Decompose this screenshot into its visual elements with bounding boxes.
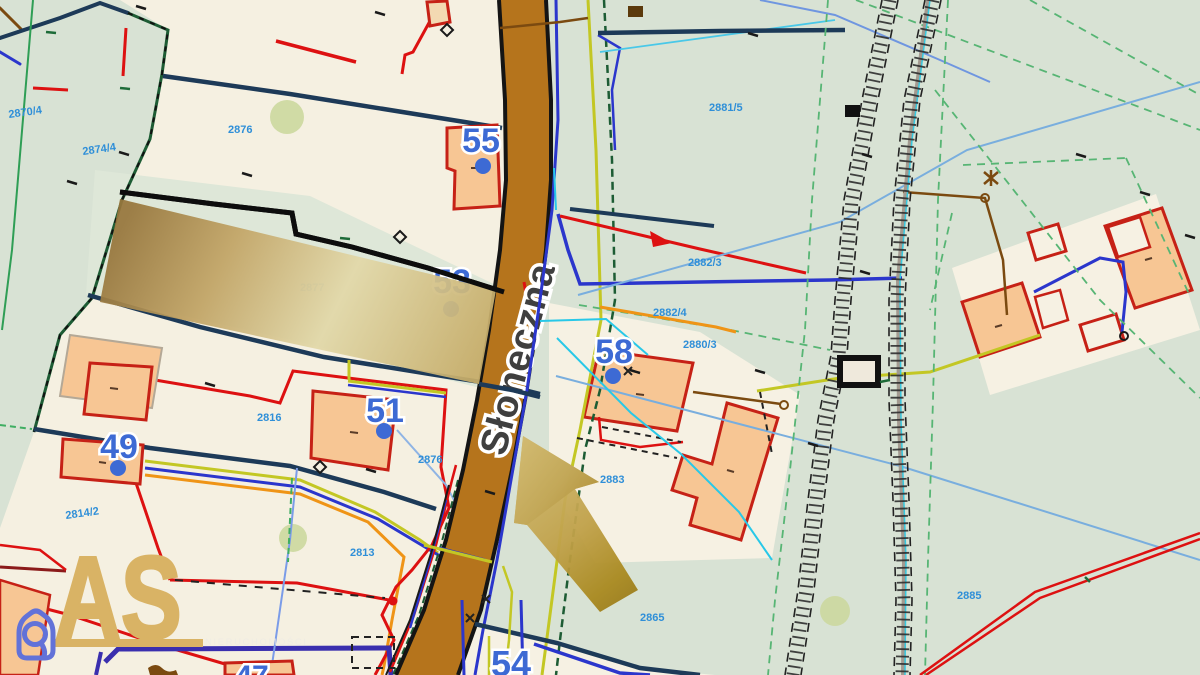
svg-text:2882/3: 2882/3 xyxy=(688,257,722,269)
svg-text:2816: 2816 xyxy=(257,412,281,424)
svg-text:2881/5: 2881/5 xyxy=(709,102,743,114)
svg-text:2883: 2883 xyxy=(600,474,624,486)
svg-text:NIERUCHOMOŚCI: NIERUCHOMOŚCI xyxy=(205,636,308,648)
svg-text:2876: 2876 xyxy=(418,454,442,466)
svg-text:55: 55 xyxy=(462,122,500,160)
svg-text:2885: 2885 xyxy=(957,590,981,602)
svg-text:54: 54 xyxy=(491,643,531,675)
svg-text:47: 47 xyxy=(235,660,268,675)
svg-text:2813: 2813 xyxy=(350,547,374,559)
svg-text:2880/3: 2880/3 xyxy=(683,339,717,351)
svg-text:2876: 2876 xyxy=(228,124,252,136)
svg-text:2882/4: 2882/4 xyxy=(653,307,688,319)
svg-text:58: 58 xyxy=(595,333,633,371)
svg-text:2865: 2865 xyxy=(640,612,664,624)
